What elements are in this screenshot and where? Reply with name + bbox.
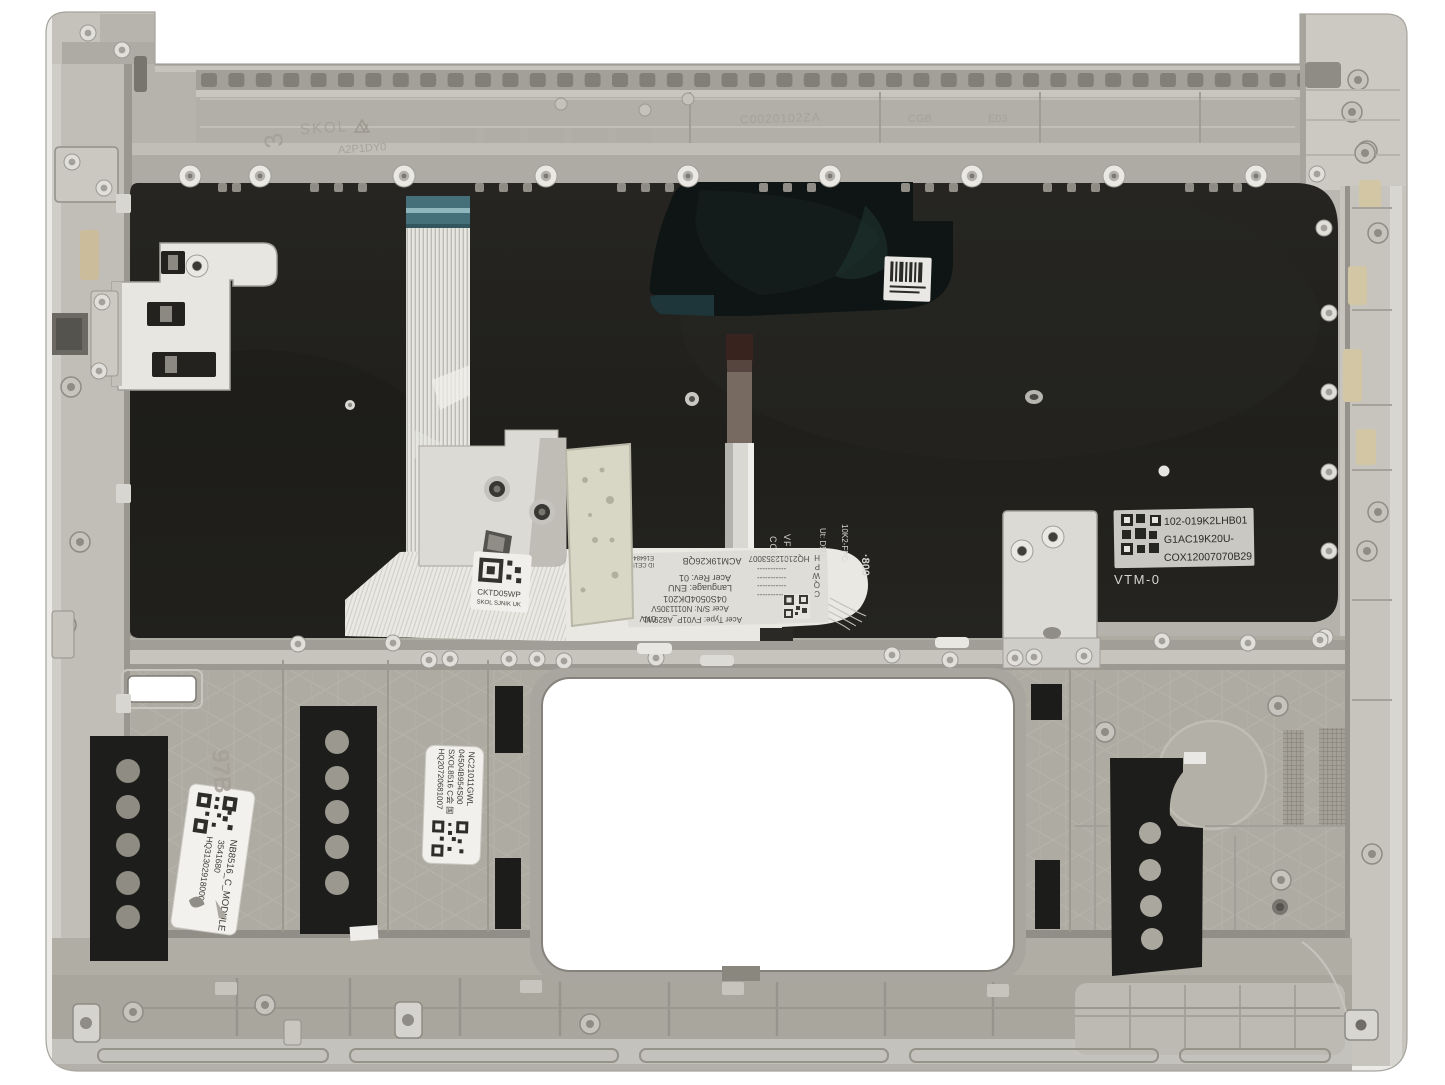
svg-text:W: W [812, 571, 820, 580]
svg-text:E164844: E164844 [629, 554, 654, 560]
svg-text:VF: D: VF: D [782, 534, 792, 562]
svg-text:ACM19K26QB: ACM19K26QB [682, 556, 741, 566]
svg-text:04S0504DK201: 04S0504DK201 [663, 594, 727, 604]
svg-text:E03: E03 [988, 113, 1008, 125]
svg-text:Acer S/N: N0111305V: Acer S/N: N0111305V [651, 604, 729, 613]
svg-text:Acer Rev: 01: Acer Rev: 01 [679, 573, 731, 583]
svg-text:97B: 97B [206, 749, 236, 795]
svg-text:-----------: ----------- [757, 590, 787, 599]
svg-text:VTM-0: VTM-0 [1114, 572, 1161, 587]
svg-text:SKOL: SKOL [299, 118, 348, 138]
svg-text:COLO: COLO [768, 536, 778, 566]
svg-text:102-019K2LHB01: 102-019K2LHB01 [1164, 515, 1248, 528]
svg-text:Q: Q [814, 580, 820, 589]
svg-text:Language: ENU: Language: ENU [668, 583, 732, 593]
svg-text:10K2-FPC-: 10K2-FPC- [840, 524, 849, 564]
svg-text:C0020102ZA: C0020102ZA [740, 110, 821, 127]
svg-text:CGB: CGB [908, 113, 932, 125]
svg-text:P: P [815, 562, 820, 571]
svg-text:COX12007070B29: COX12007070B29 [1164, 550, 1253, 564]
svg-text:C: C [814, 589, 820, 598]
svg-text:G1AC19K20U-: G1AC19K20U- [1164, 533, 1235, 546]
svg-text:·800: ·800 [859, 554, 871, 576]
svg-text:-----------: ----------- [757, 581, 787, 590]
svg-text:Ut: D5U: Ut: D5U [818, 528, 827, 557]
svg-text:CNV: CNV [639, 614, 657, 623]
svg-text:NC21011GWL: NC21011GWL [465, 751, 477, 806]
